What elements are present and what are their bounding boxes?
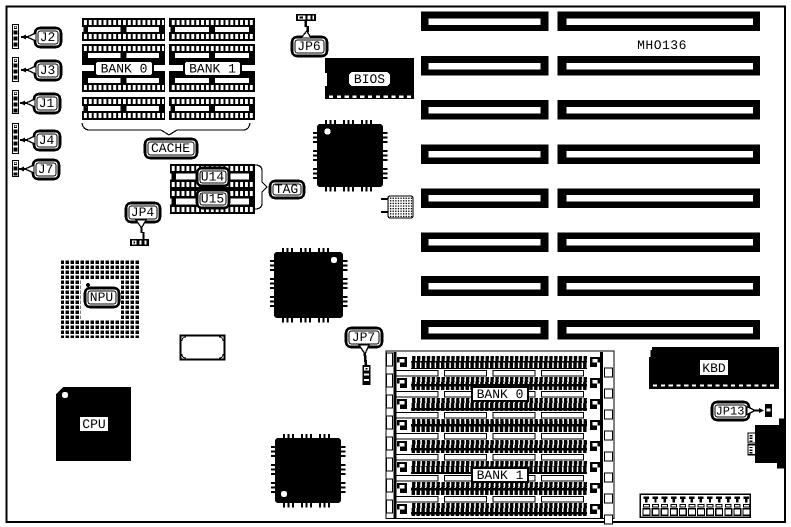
svg-text:CPU: CPU — [82, 417, 105, 432]
svg-text:BANK 1: BANK 1 — [477, 468, 524, 483]
svg-text:J2: J2 — [40, 30, 56, 45]
svg-text:BANK 0: BANK 0 — [101, 62, 148, 77]
svg-text:TAG: TAG — [275, 182, 298, 197]
svg-text:JP13: JP13 — [716, 405, 745, 419]
svg-text:BANK 1: BANK 1 — [189, 62, 236, 77]
svg-text:JP7: JP7 — [352, 330, 375, 345]
svg-text:U15: U15 — [201, 192, 224, 207]
svg-text:JP4: JP4 — [131, 205, 155, 220]
svg-text:BIOS: BIOS — [354, 72, 385, 87]
svg-text:CACHE: CACHE — [151, 141, 190, 156]
svg-text:MHO136: MHO136 — [637, 38, 687, 53]
svg-text:J1: J1 — [39, 96, 55, 111]
svg-text:J4: J4 — [39, 133, 55, 148]
svg-text:KBD: KBD — [702, 361, 726, 376]
svg-text:U14: U14 — [201, 170, 225, 185]
svg-text:BANK 0: BANK 0 — [477, 387, 524, 402]
svg-text:J7: J7 — [38, 162, 54, 177]
svg-text:NPU: NPU — [90, 290, 113, 305]
svg-text:J3: J3 — [40, 63, 56, 78]
svg-text:JP6: JP6 — [297, 39, 320, 54]
